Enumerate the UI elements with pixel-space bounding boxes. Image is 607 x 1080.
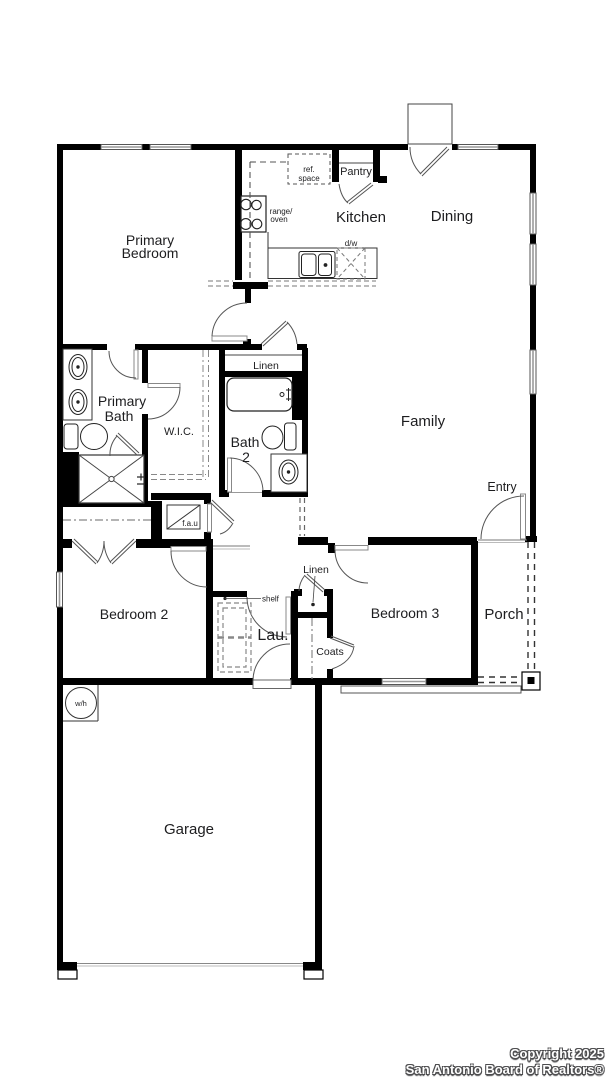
svg-text:w/h: w/h	[74, 699, 87, 708]
svg-text:f.a.u: f.a.u	[182, 519, 198, 528]
svg-text:Kitchen: Kitchen	[336, 209, 386, 226]
svg-text:oven: oven	[270, 215, 287, 224]
svg-text:Primary: Primary	[98, 393, 146, 409]
svg-text:Linen: Linen	[303, 564, 329, 576]
svg-text:space: space	[298, 174, 320, 183]
svg-text:Bath: Bath	[105, 408, 134, 424]
svg-text:Dining: Dining	[431, 208, 474, 225]
svg-text:Bedroom 3: Bedroom 3	[371, 605, 440, 621]
svg-text:Pantry: Pantry	[340, 166, 372, 178]
svg-text:Bath: Bath	[231, 434, 260, 450]
svg-text:Garage: Garage	[164, 821, 214, 838]
svg-text:Entry: Entry	[487, 480, 517, 494]
svg-text:ref.: ref.	[303, 165, 315, 174]
svg-text:Family: Family	[401, 413, 446, 430]
svg-text:Porch: Porch	[484, 606, 523, 623]
svg-text:Bedroom: Bedroom	[122, 245, 179, 261]
svg-text:2: 2	[242, 449, 250, 465]
svg-text:Lau.: Lau.	[257, 627, 288, 644]
svg-text:d/w: d/w	[345, 239, 358, 248]
svg-text:W.I.C.: W.I.C.	[164, 426, 194, 438]
svg-text:Linen: Linen	[253, 360, 279, 372]
svg-text:Bedroom 2: Bedroom 2	[100, 606, 169, 622]
svg-text:Coats: Coats	[316, 646, 343, 658]
svg-text:shelf: shelf	[262, 595, 280, 604]
